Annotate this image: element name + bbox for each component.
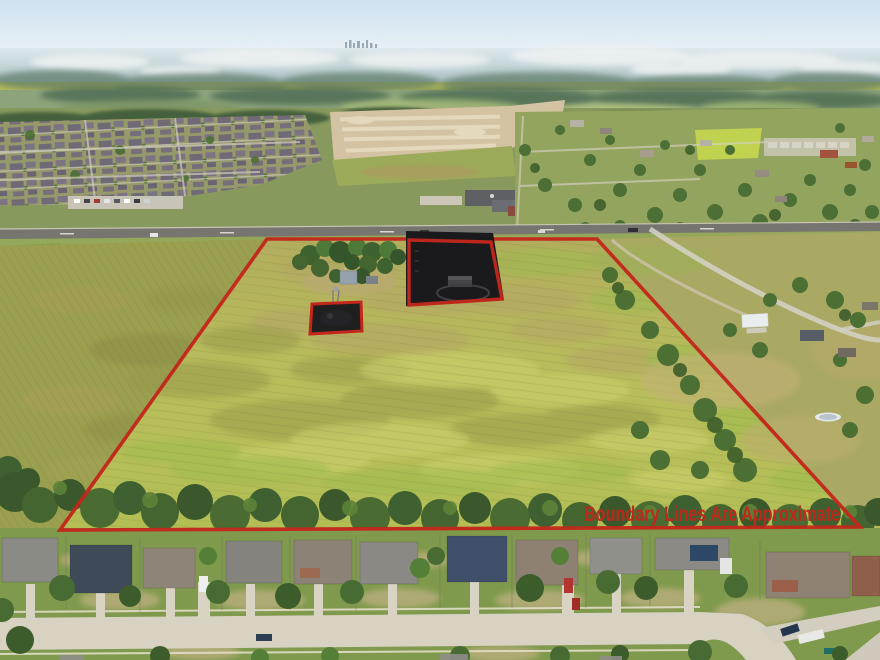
house: [360, 542, 418, 584]
rural-neighborhood: [515, 108, 880, 238]
house: [2, 538, 58, 582]
redaction-large: [406, 231, 504, 306]
house: [852, 556, 880, 596]
watermark-text: Boundary Lines Are Approximate: [584, 503, 840, 526]
sky: [0, 0, 880, 54]
outbuilding: [366, 276, 378, 284]
house: [70, 545, 132, 593]
aerial-photo: Boundary Lines Are Approximate: [0, 0, 880, 660]
house: [590, 538, 642, 574]
solar-panels: [690, 545, 718, 561]
suburban-neighborhood: [0, 528, 880, 660]
house: [143, 548, 195, 588]
redaction-small: [310, 302, 362, 334]
house: [226, 541, 282, 583]
shed: [340, 271, 357, 284]
house: [447, 536, 507, 582]
trampoline: [815, 413, 841, 422]
